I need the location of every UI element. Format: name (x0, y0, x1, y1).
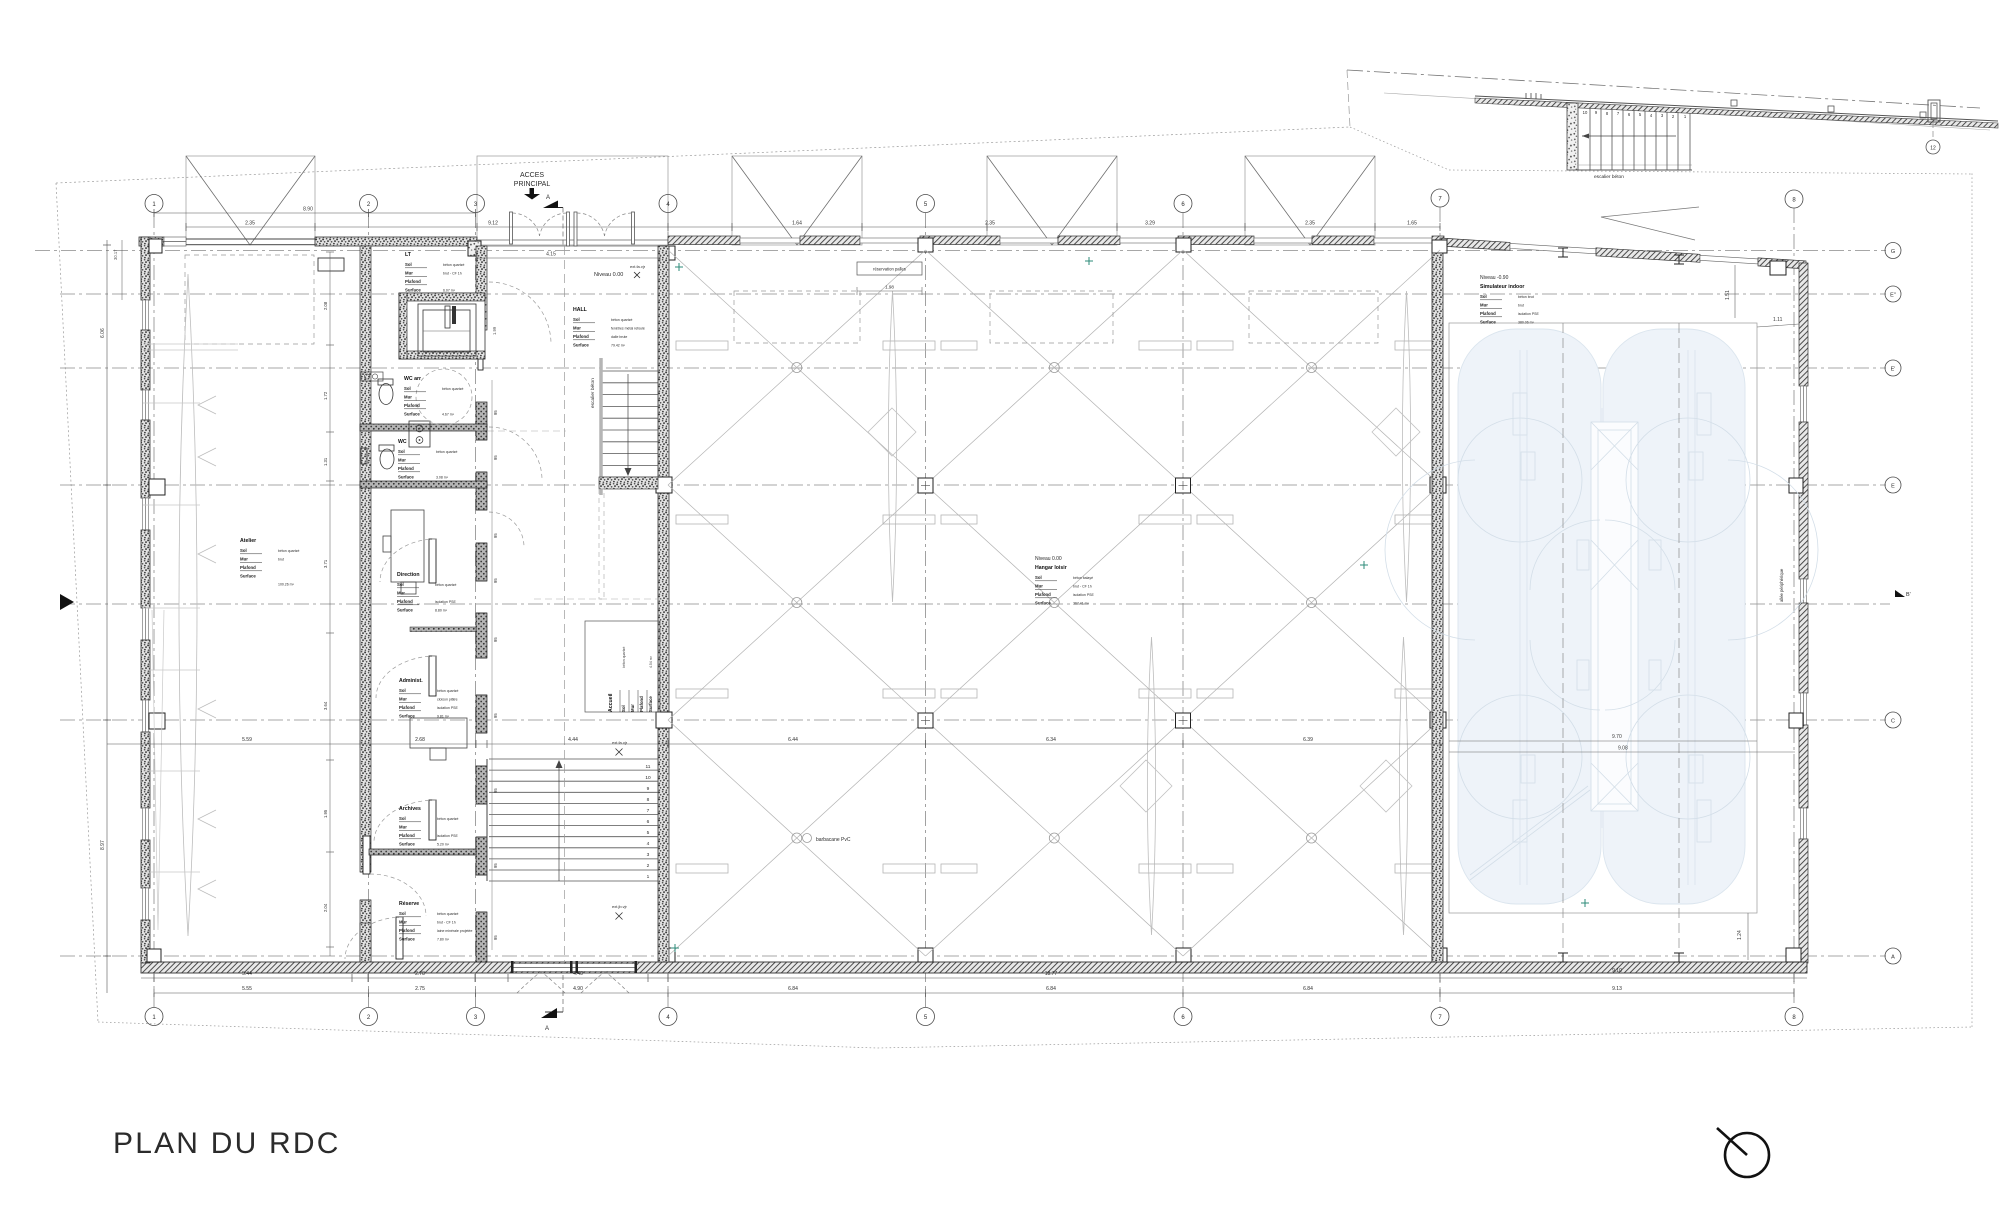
svg-text:béton balayé: béton balayé (1073, 576, 1093, 580)
svg-text:79.42 m²: 79.42 m² (611, 344, 626, 348)
svg-text:9.12: 9.12 (488, 221, 498, 227)
svg-text:béton quartzé: béton quartzé (436, 450, 457, 454)
svg-text:réservation palles: réservation palles (873, 267, 906, 272)
svg-text:2.68: 2.68 (415, 737, 425, 743)
svg-text:Mur: Mur (630, 704, 635, 712)
svg-text:7: 7 (647, 808, 650, 814)
svg-text:4.40: 4.40 (573, 971, 583, 977)
svg-text:Niveau -0.90: Niveau -0.90 (1480, 275, 1509, 281)
svg-text:1.98: 1.98 (885, 285, 894, 290)
svg-text:3.29: 3.29 (1145, 221, 1155, 227)
svg-text:béton quartzé: béton quartzé (611, 318, 632, 322)
svg-text:béton quartzé: béton quartzé (278, 549, 299, 553)
svg-text:Niveau 0.00: Niveau 0.00 (594, 272, 623, 278)
svg-text:Accueil: Accueil (608, 693, 614, 712)
svg-text:WC arr: WC arr (404, 376, 421, 382)
svg-text:barbacane PvC: barbacane PvC (816, 837, 851, 843)
svg-text:5.55: 5.55 (242, 986, 252, 992)
svg-text:3: 3 (647, 852, 650, 858)
svg-text:PRINCIPAL: PRINCIPAL (514, 181, 551, 188)
svg-text:6.39: 6.39 (1303, 737, 1313, 743)
svg-text:isolation PSE: isolation PSE (1518, 312, 1539, 316)
svg-text:PLAN DU RDC: PLAN DU RDC (113, 1127, 341, 1160)
svg-text:8.97: 8.97 (100, 840, 106, 850)
svg-text:95: 95 (493, 533, 498, 538)
svg-text:béton brut: béton brut (1518, 295, 1534, 299)
svg-text:fenêtres métal refoulé: fenêtres métal refoulé (611, 327, 645, 331)
svg-text:95: 95 (493, 713, 498, 718)
svg-text:brut - CF 1h: brut - CF 1h (1073, 585, 1092, 589)
svg-text:HALL: HALL (573, 307, 588, 313)
svg-text:béton quartzé: béton quartzé (437, 817, 458, 821)
svg-text:100.26 m²: 100.26 m² (278, 583, 295, 587)
svg-text:béton quartzé: béton quartzé (437, 689, 458, 693)
svg-text:95: 95 (493, 578, 498, 583)
svg-text:3.08 m²: 3.08 m² (436, 476, 449, 480)
svg-text:isolation PSE: isolation PSE (1073, 593, 1094, 597)
svg-text:8: 8 (647, 797, 650, 803)
svg-text:6.84: 6.84 (1303, 986, 1313, 992)
svg-text:A: A (1891, 955, 1895, 961)
svg-text:6.84: 6.84 (788, 986, 798, 992)
svg-text:4: 4 (647, 841, 650, 847)
svg-text:Direction: Direction (397, 572, 419, 578)
svg-text:10: 10 (645, 775, 651, 781)
svg-text:12: 12 (1930, 146, 1936, 152)
svg-text:9.81 m²: 9.81 m² (437, 715, 450, 719)
svg-text:Simulateur indoor: Simulateur indoor (1480, 284, 1524, 290)
svg-text:Plafond: Plafond (639, 696, 644, 712)
svg-text:95: 95 (493, 863, 498, 868)
svg-text:ext.jb.vjr: ext.jb.vjr (612, 904, 628, 909)
svg-text:Niveau 0.00: Niveau 0.00 (1035, 556, 1062, 562)
svg-text:6.84: 6.84 (1046, 986, 1056, 992)
svg-text:G: G (1891, 249, 1895, 255)
svg-text:18.77: 18.77 (1045, 971, 1058, 977)
svg-text:Sol: Sol (621, 705, 626, 712)
svg-text:1.99: 1.99 (492, 326, 497, 335)
svg-text:B': B' (1906, 592, 1911, 598)
svg-text:1.65: 1.65 (1407, 221, 1417, 227)
svg-text:A: A (546, 195, 550, 201)
svg-text:E': E' (1891, 367, 1896, 373)
svg-text:béton quartzé: béton quartzé (622, 647, 626, 668)
svg-text:ext.fa.vjr: ext.fa.vjr (630, 264, 646, 269)
svg-text:4.67 m²: 4.67 m² (442, 413, 455, 417)
svg-text:95: 95 (493, 637, 498, 642)
svg-text:1.31: 1.31 (323, 457, 328, 466)
svg-text:2.04: 2.04 (323, 903, 328, 912)
svg-text:3.64: 3.64 (323, 701, 328, 710)
svg-text:C: C (1891, 719, 1895, 725)
svg-text:Hangar loisir: Hangar loisir (1035, 565, 1067, 571)
svg-text:11: 11 (646, 764, 651, 770)
svg-text:6.44: 6.44 (788, 737, 798, 743)
svg-text:1.51: 1.51 (1725, 290, 1731, 300)
svg-text:380.06 m²: 380.06 m² (1518, 321, 1535, 325)
svg-text:Atelier: Atelier (240, 538, 256, 544)
svg-text:2.08: 2.08 (323, 301, 328, 310)
svg-text:4.44: 4.44 (568, 737, 578, 743)
svg-text:béton quartzé: béton quartzé (443, 263, 464, 267)
svg-text:laine minérale projetée: laine minérale projetée (437, 929, 472, 933)
svg-text:escalier béton: escalier béton (1594, 174, 1624, 180)
svg-text:6.34: 6.34 (1046, 737, 1056, 743)
svg-text:95: 95 (493, 455, 498, 460)
svg-text:allée périphérique: allée périphérique (1779, 568, 1784, 602)
svg-text:brut - CF 1h: brut - CF 1h (437, 921, 456, 925)
svg-text:1: 1 (647, 874, 650, 880)
svg-text:3.71: 3.71 (323, 559, 328, 568)
svg-text:isolation PSE: isolation PSE (437, 706, 458, 710)
svg-text:LT: LT (405, 252, 412, 258)
svg-text:isolation PSE: isolation PSE (435, 600, 456, 604)
svg-text:Surface: Surface (648, 696, 653, 712)
svg-text:brut - CF 1h: brut - CF 1h (443, 272, 462, 276)
svg-text:2.35: 2.35 (985, 221, 995, 227)
svg-text:1.72: 1.72 (323, 391, 328, 400)
svg-text:1.64: 1.64 (792, 221, 802, 227)
svg-text:5.20 m²: 5.20 m² (437, 843, 450, 847)
svg-text:béton quartzé: béton quartzé (442, 387, 463, 391)
svg-text:Réserve: Réserve (399, 901, 419, 907)
svg-text:2.35: 2.35 (245, 221, 255, 227)
svg-text:ACCES: ACCES (520, 172, 544, 179)
svg-text:8.80 m²: 8.80 m² (435, 609, 448, 613)
svg-text:2: 2 (647, 863, 650, 869)
svg-text:1.95: 1.95 (323, 809, 328, 818)
svg-text:95: 95 (493, 410, 498, 415)
svg-text:30.17: 30.17 (113, 249, 118, 260)
svg-text:2.78: 2.78 (415, 971, 425, 977)
svg-text:béton quartzé: béton quartzé (437, 912, 458, 916)
svg-text:6.06: 6.06 (100, 328, 106, 338)
svg-text:béton quartzé: béton quartzé (435, 583, 456, 587)
svg-text:367.41 m²: 367.41 m² (1073, 602, 1090, 606)
svg-text:Archives: Archives (399, 806, 421, 812)
svg-text:2.35: 2.35 (1305, 221, 1315, 227)
svg-text:Administ.: Administ. (399, 678, 423, 684)
svg-text:4.54 m²: 4.54 m² (649, 655, 653, 668)
svg-text:4.15: 4.15 (546, 252, 556, 258)
svg-text:95: 95 (493, 935, 498, 940)
svg-text:6: 6 (647, 819, 650, 825)
svg-text:9.08: 9.08 (1618, 746, 1628, 752)
svg-text:6.07 m²: 6.07 m² (443, 289, 456, 293)
svg-text:9.13: 9.13 (1612, 986, 1622, 992)
svg-text:7.80 m²: 7.80 m² (437, 938, 450, 942)
svg-text:1.11: 1.11 (1773, 317, 1783, 323)
svg-text:escalier béton: escalier béton (590, 378, 596, 408)
svg-text:E'': E'' (1890, 293, 1896, 299)
svg-text:5.59: 5.59 (242, 737, 252, 743)
svg-text:9.70: 9.70 (1612, 734, 1622, 740)
svg-text:8.90: 8.90 (303, 207, 313, 213)
svg-text:9.10: 9.10 (1612, 968, 1622, 974)
svg-text:4.90: 4.90 (573, 986, 583, 992)
svg-text:WC: WC (398, 439, 407, 445)
svg-text:brut: brut (1518, 304, 1524, 308)
svg-text:2.75: 2.75 (415, 986, 425, 992)
svg-text:9: 9 (647, 786, 650, 792)
svg-text:10: 10 (1583, 110, 1588, 115)
svg-text:brut: brut (278, 558, 284, 562)
svg-text:5.44: 5.44 (242, 971, 252, 977)
svg-text:E: E (1891, 484, 1895, 490)
svg-text:1.24: 1.24 (1737, 930, 1743, 940)
svg-text:A: A (545, 1026, 549, 1032)
svg-text:cloison plâtre: cloison plâtre (437, 698, 458, 702)
svg-text:5: 5 (647, 830, 650, 836)
svg-text:95: 95 (493, 788, 498, 793)
svg-text:dalle brute: dalle brute (611, 335, 627, 339)
svg-text:isolation PSE: isolation PSE (437, 834, 458, 838)
